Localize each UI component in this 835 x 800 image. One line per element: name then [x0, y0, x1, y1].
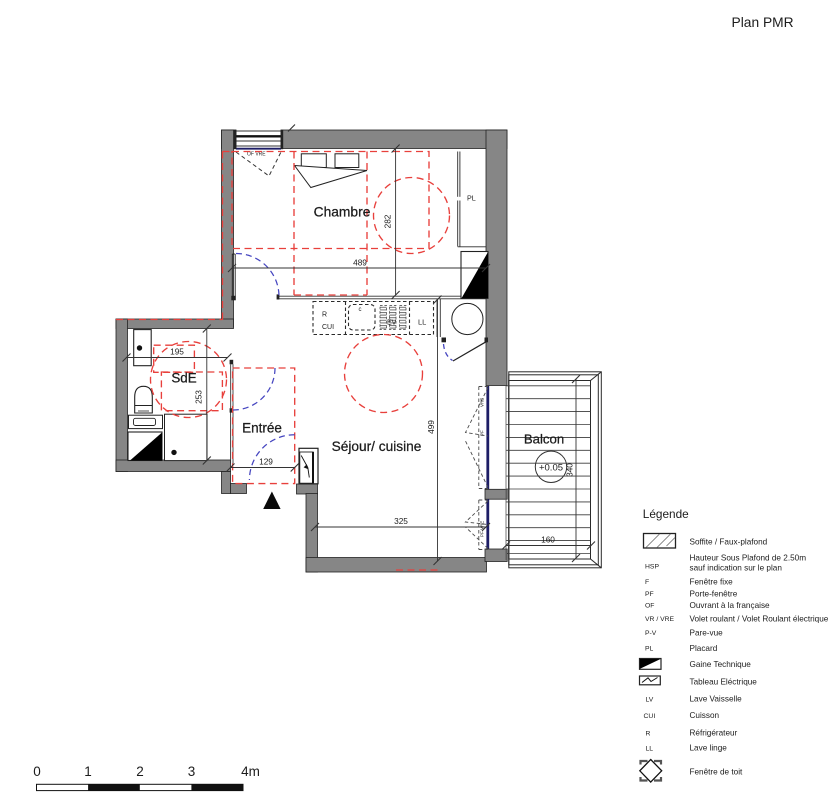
svg-text:Chambre: Chambre	[314, 205, 371, 220]
svg-text:HSP: HSP	[645, 564, 659, 571]
svg-text:3: 3	[188, 764, 196, 779]
svg-text:Ouvrant à la française: Ouvrant à la française	[690, 601, 771, 610]
svg-text:Gaine Technique: Gaine Technique	[690, 660, 752, 669]
svg-text:2: 2	[136, 764, 144, 779]
svg-text:F: F	[645, 579, 649, 586]
svg-text:Entrée: Entrée	[242, 421, 282, 436]
svg-text:4m: 4m	[241, 764, 260, 779]
svg-text:Pare-vue: Pare-vue	[690, 628, 724, 637]
svg-text:1: 1	[84, 764, 92, 779]
svg-text:CUI: CUI	[322, 324, 334, 331]
svg-text:Volet roulant / Volet Roulant: Volet roulant / Volet Roulant électrique	[690, 615, 829, 624]
svg-text:P-V: P-V	[645, 630, 657, 637]
svg-text:CUI: CUI	[644, 713, 656, 720]
svg-text:Placard: Placard	[690, 644, 718, 653]
svg-text:SdE: SdE	[171, 371, 196, 386]
svg-text:325: 325	[394, 516, 408, 526]
svg-text:Balcon: Balcon	[524, 432, 564, 447]
svg-text:R: R	[646, 730, 651, 737]
svg-text:Soffite / Faux-plafond: Soffite / Faux-plafond	[690, 538, 768, 547]
svg-text:LL: LL	[418, 318, 426, 327]
svg-text:Plan PMR: Plan PMR	[732, 15, 794, 30]
svg-text:LL: LL	[646, 746, 654, 753]
svg-text:PL: PL	[645, 645, 654, 652]
svg-text:VRE: VRE	[480, 398, 485, 407]
svg-text:253: 253	[194, 390, 204, 404]
svg-text:195: 195	[170, 347, 184, 357]
svg-text:Porte-fenêtre: Porte-fenêtre	[690, 590, 738, 599]
svg-text:Tableau Eléctrique: Tableau Eléctrique	[690, 677, 758, 686]
svg-text:Cuisson: Cuisson	[690, 711, 720, 720]
svg-text:VR / VRE: VR / VRE	[645, 616, 675, 623]
svg-text:OF VRE: OF VRE	[247, 152, 266, 158]
svg-text:Lave linge: Lave linge	[690, 744, 728, 753]
svg-text:PF: PF	[480, 430, 485, 436]
svg-text:340: 340	[565, 463, 575, 477]
svg-text:129: 129	[259, 457, 273, 467]
svg-text:Lave Vaisselle: Lave Vaisselle	[690, 694, 743, 703]
svg-text:Réfrigérateur: Réfrigérateur	[690, 728, 738, 737]
svg-text:OF: OF	[645, 602, 654, 609]
svg-text:160: 160	[541, 535, 555, 545]
svg-text:PF: PF	[645, 591, 654, 598]
svg-text:LV: LV	[646, 696, 654, 703]
svg-text:499: 499	[426, 420, 436, 434]
svg-text:R: R	[322, 312, 327, 319]
svg-text:Séjour/ cuisine: Séjour/ cuisine	[332, 439, 422, 454]
svg-text:c: c	[359, 307, 362, 313]
svg-text:ÉV: ÉV	[387, 318, 397, 327]
svg-text:489: 489	[353, 258, 367, 268]
svg-text:Légende: Légende	[643, 507, 689, 521]
svg-text:Fenêtre fixe: Fenêtre fixe	[690, 577, 734, 586]
svg-text:282: 282	[383, 214, 393, 228]
svg-text:sauf indication sur le plan: sauf indication sur le plan	[690, 564, 783, 573]
svg-text:Fenêtre de toit: Fenêtre de toit	[690, 767, 744, 776]
svg-text:PL: PL	[467, 194, 476, 203]
svg-text:+0.05: +0.05	[539, 463, 563, 474]
svg-text:Hauteur Sous Plafond de 2.50m: Hauteur Sous Plafond de 2.50m	[690, 554, 807, 563]
svg-text:0: 0	[33, 764, 41, 779]
